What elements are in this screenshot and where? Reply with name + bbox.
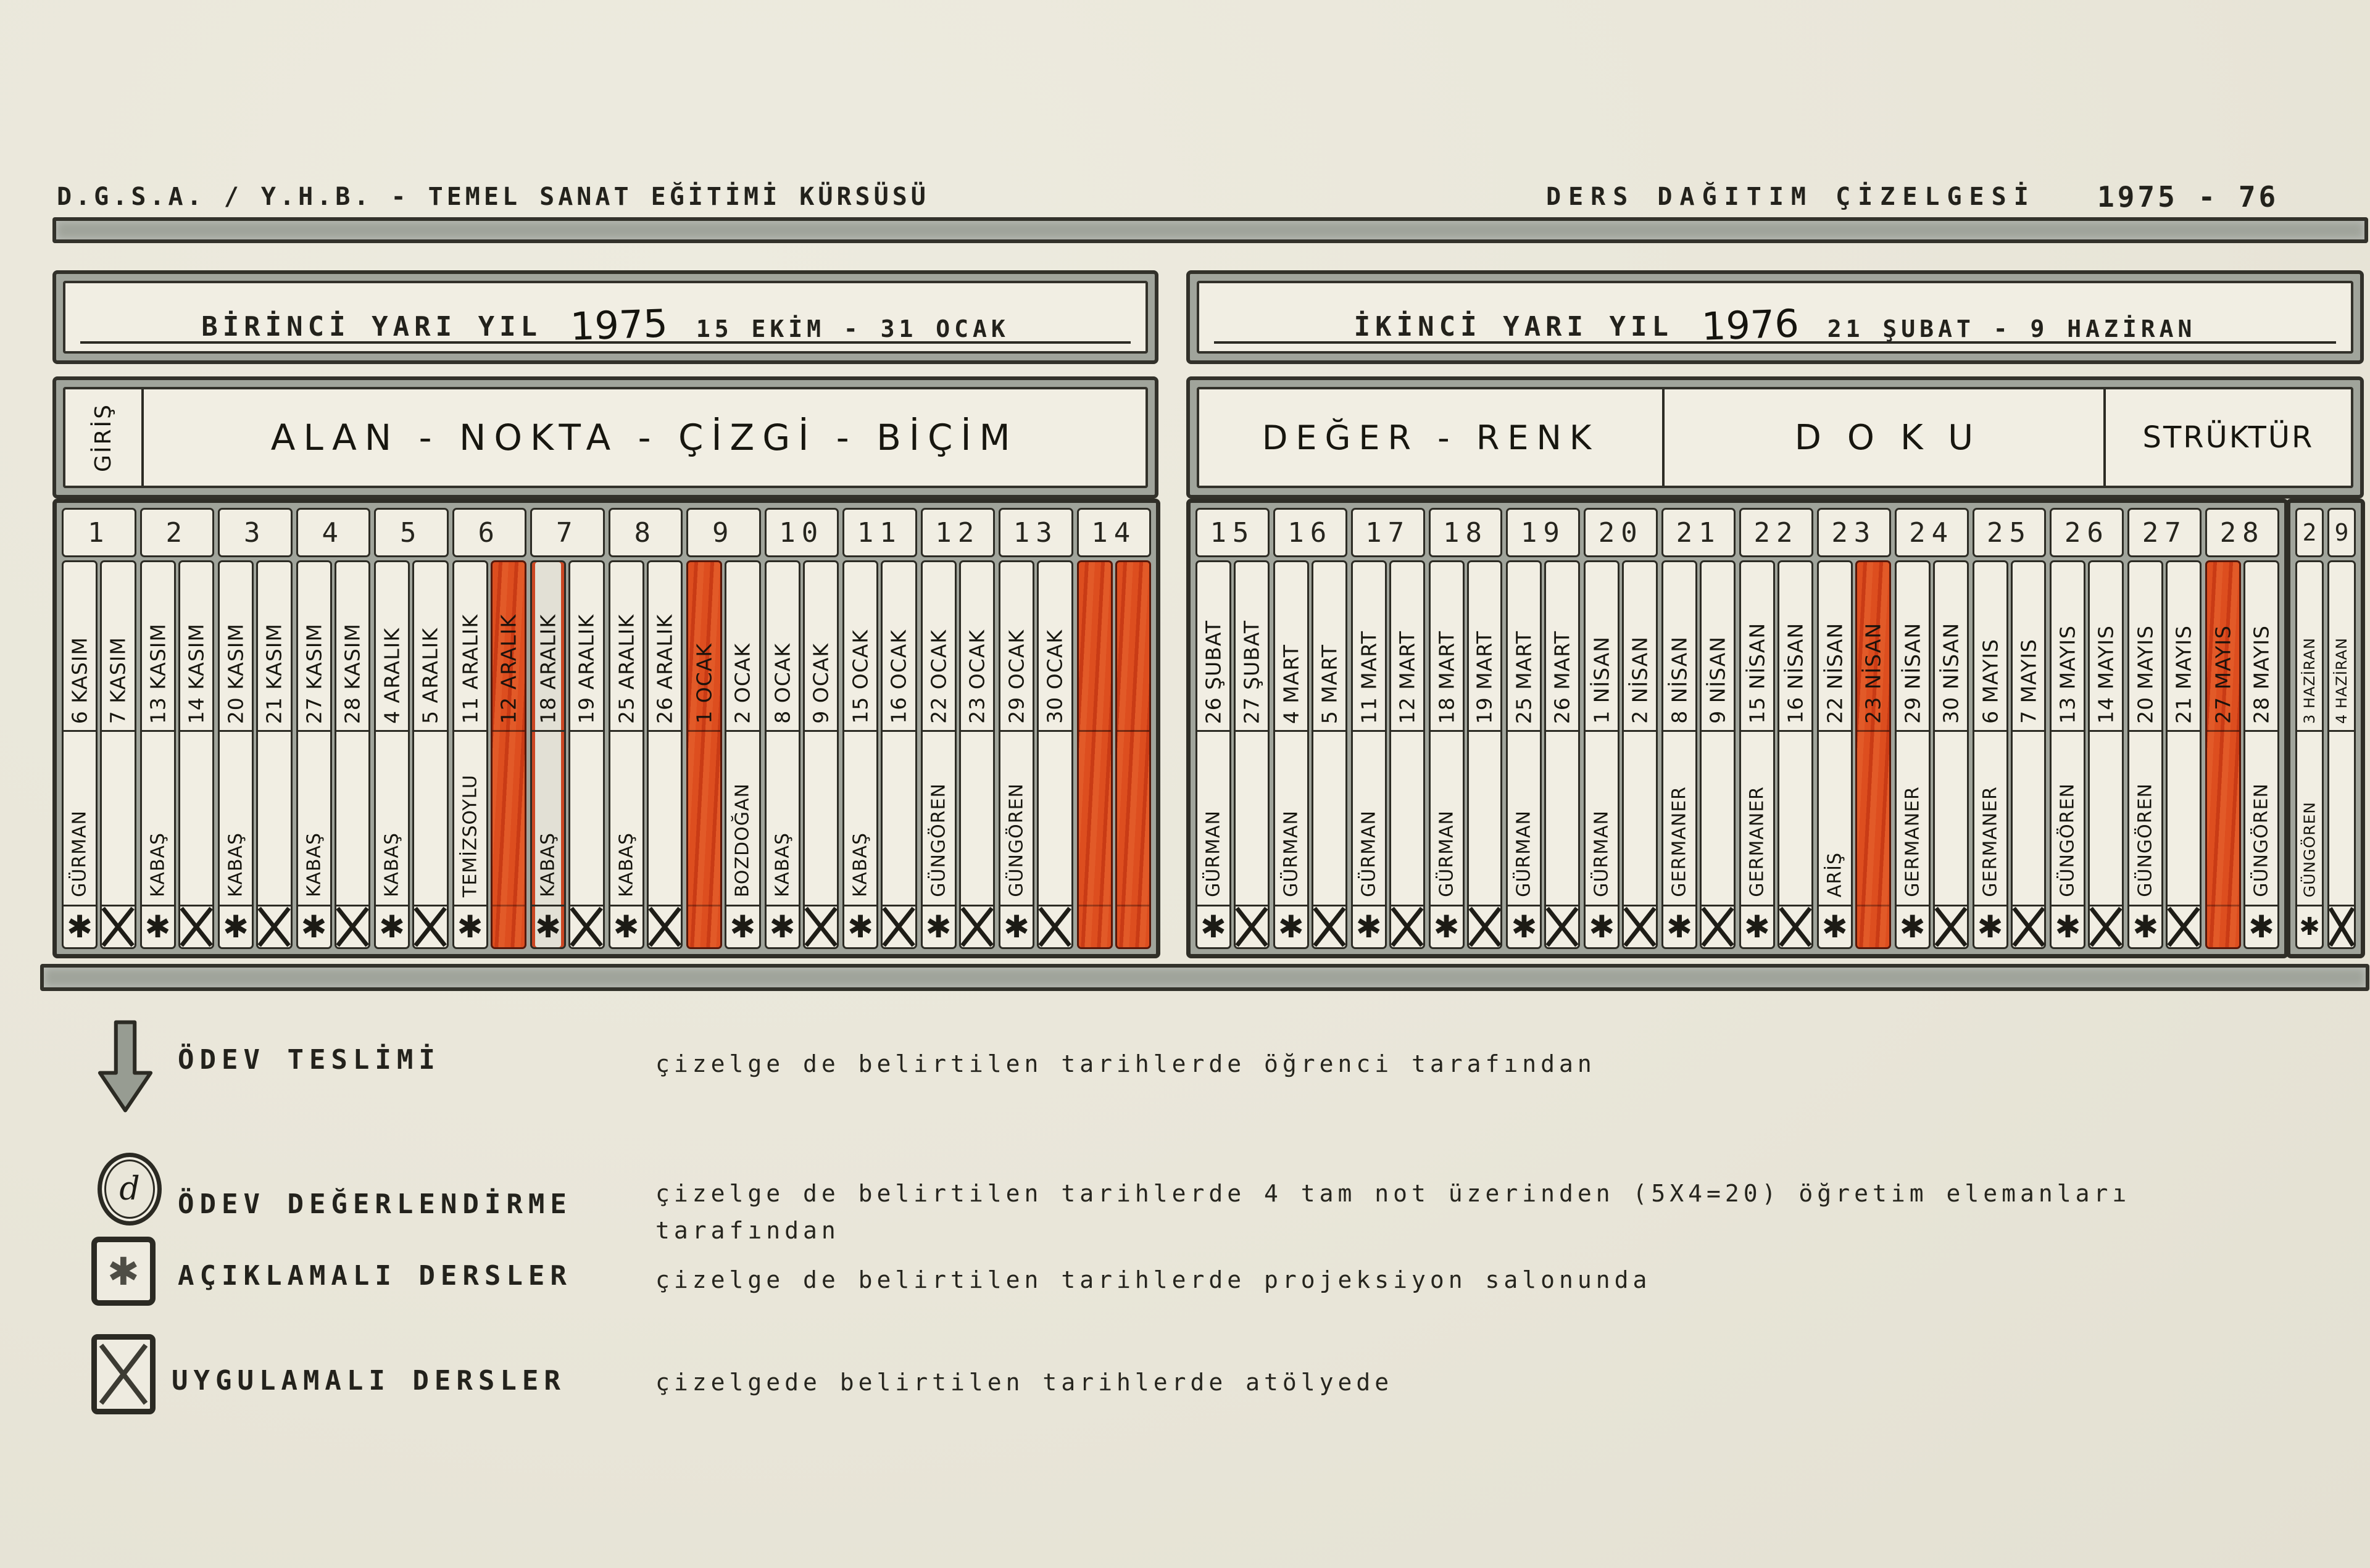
day-column: 26 MART	[1544, 560, 1580, 949]
week-days: 11 MARTGÜRMAN✱12 MART	[1351, 560, 1425, 949]
day-column: 18 MARTGÜRMAN✱	[1429, 560, 1465, 949]
week-column: 427 KASIMKABAŞ✱28 KASIM	[296, 508, 371, 949]
symbol-cell	[2090, 905, 2122, 947]
week-days: 27 MAYIS28 MAYISGÜNGÖREN✱	[2205, 560, 2279, 949]
date-cell: 30 OCAK	[1039, 562, 1071, 732]
instructor-cell: KABAŞ	[844, 732, 876, 905]
instructor-cell: KABAŞ	[767, 732, 799, 905]
date-label: 13 KASIM	[146, 623, 170, 724]
day-column: 13 KASIMKABAŞ✱	[140, 560, 176, 949]
legend-odev-teslimi-label: ÖDEV TESLİMİ	[178, 1044, 441, 1076]
date-cell: 22 NİSAN	[1819, 562, 1851, 732]
date-cell: 4 ARALIK	[376, 562, 408, 732]
instructor-name: GÜNGÖREN	[2135, 783, 2156, 897]
lecture-star-icon: ✱	[2248, 911, 2274, 942]
date-label: 19 ARALIK	[575, 614, 599, 724]
instructor-cell: GÜNGÖREN	[2052, 732, 2084, 905]
instructor-cell	[649, 732, 681, 905]
instructor-name: GÜRMAN	[1591, 810, 1613, 897]
date-cell: 9 NİSAN	[1702, 562, 1734, 732]
day-column: 19 MART	[1467, 560, 1503, 949]
practice-x-icon	[1391, 906, 1423, 947]
week-days: 13 MAYISGÜNGÖREN✱14 MAYIS	[2050, 560, 2124, 949]
semester-2-year: 1976	[1701, 306, 1800, 344]
date-cell: 29 OCAK	[1000, 562, 1033, 732]
date-cell: 25 ARALIK	[610, 562, 642, 732]
practice-x-icon	[180, 906, 212, 947]
practice-x-icon	[1702, 906, 1734, 947]
date-label: 30 OCAK	[1043, 629, 1067, 724]
symbol-cell: ✱	[2129, 905, 2161, 947]
day-column: 20 MAYISGÜNGÖREN✱	[2127, 560, 2163, 949]
day-column: 20 KASIMKABAŞ✱	[218, 560, 254, 949]
week-number: 11	[842, 508, 917, 557]
instructor-name: ARİŞ	[1824, 852, 1845, 897]
lecture-star-icon: ✱	[2055, 911, 2081, 942]
week-number: 12	[921, 508, 996, 557]
instructor-cell: GÜRMAN	[1275, 732, 1307, 905]
day-column: 27 MAYIS	[2205, 560, 2241, 949]
symbol-cell	[1039, 905, 1071, 947]
instructor-cell	[2013, 732, 2045, 905]
instructor-name: GERMANER	[1746, 786, 1768, 897]
week-days: 18 MARTGÜRMAN✱19 MART	[1429, 560, 1503, 949]
day-column: 13 MAYISGÜNGÖREN✱	[2050, 560, 2085, 949]
symbol-cell	[1857, 905, 1889, 947]
symbol-cell: ✱	[923, 905, 955, 947]
symbol-cell	[570, 905, 602, 947]
date-label: 3 HAZİRAN	[2301, 637, 2318, 724]
symbol-cell: ✱	[1508, 905, 1540, 947]
instructor-cell	[1857, 732, 1889, 905]
date-label: 26 ARALIK	[652, 614, 676, 724]
lecture-star-icon: ✱	[2299, 915, 2320, 939]
practice-x-icon	[2329, 906, 2354, 947]
date-label: 22 OCAK	[926, 629, 950, 724]
date-label: 2 NİSAN	[1628, 636, 1652, 724]
week-column: 825 ARALIKKABAŞ✱26 ARALIK	[609, 508, 683, 949]
symbol-cell: ✱	[1897, 905, 1929, 947]
instructor-name: KABAŞ	[303, 832, 325, 897]
day-column: 21 KASIM	[256, 560, 292, 949]
practice-x-icon	[570, 906, 602, 947]
instructor-cell	[1469, 732, 1501, 905]
instructor-name: GÜRMAN	[1358, 810, 1379, 897]
instructor-cell: KABAŞ	[532, 732, 564, 905]
date-label: 4 ARALIK	[380, 628, 404, 724]
date-label: 15 NİSAN	[1745, 623, 1769, 724]
week-days: 18 ARALIKKABAŞ✱19 ARALIK	[530, 560, 605, 949]
legend-odev-teslimi-desc: çizelge de belirtilen tarihlerde öğrenci…	[655, 1050, 1596, 1077]
day-column: 26 ARALIK	[647, 560, 683, 949]
instructor-cell	[1935, 732, 1967, 905]
separator-bar-top	[52, 217, 2368, 243]
date-label: 4 MART	[1279, 644, 1303, 724]
symbol-cell: ✱	[610, 905, 642, 947]
day-column: 19 ARALIK	[568, 560, 604, 949]
practice-x-icon	[258, 906, 290, 947]
date-cell: 6 KASIM	[64, 562, 96, 732]
week-column: 94 HAZİRAN	[2327, 508, 2356, 949]
symbol-cell: ✱	[844, 905, 876, 947]
date-cell: 14 MAYIS	[2090, 562, 2122, 732]
day-column: 27 KASIMKABAŞ✱	[296, 560, 332, 949]
schedule-table-semester-2: 1526 ŞUBATGÜRMAN✱27 ŞUBAT164 MARTGÜRMAN✱…	[1186, 499, 2289, 958]
date-label: 22 NİSAN	[1823, 623, 1847, 724]
semester-2-title: İKİNCİ YARI YIL	[1354, 311, 1673, 342]
practice-x-icon	[2090, 906, 2122, 947]
instructor-cell: GERMANER	[1974, 732, 2006, 905]
day-column: 5 MART	[1312, 560, 1347, 949]
instructor-name: BOZDOĞAN	[732, 783, 754, 897]
separator-bar-bottom	[40, 964, 2369, 991]
instructor-name: GÜNGÖREN	[2057, 783, 2079, 897]
date-label: 28 MAYIS	[2250, 625, 2274, 724]
lecture-star-icon: ✱	[1589, 911, 1615, 942]
week-number: 8	[609, 508, 683, 557]
day-column: 18 ARALIKKABAŞ✱	[530, 560, 566, 949]
week-number: 26	[2050, 508, 2124, 557]
subject-giris: GİRİŞ	[65, 389, 141, 486]
week-column: 718 ARALIKKABAŞ✱19 ARALIK	[530, 508, 605, 949]
day-column: 29 OCAKGÜNGÖREN✱	[999, 560, 1034, 949]
date-label: 14 KASIM	[184, 623, 208, 724]
instructor-cell: KABAŞ	[376, 732, 408, 905]
week-number: 4	[296, 508, 371, 557]
week-number: 9	[686, 508, 761, 557]
day-column: 7 MAYIS	[2011, 560, 2047, 949]
date-label: 23 OCAK	[965, 629, 989, 724]
practice-x-icon	[2013, 906, 2045, 947]
date-cell: 18 ARALIK	[532, 562, 564, 732]
date-label: 26 MART	[1550, 631, 1574, 724]
subject-giris-label: GİRİŞ	[91, 403, 116, 472]
week-days: 25 ARALIKKABAŞ✱26 ARALIK	[609, 560, 683, 949]
instructor-cell: GÜRMAN	[64, 732, 96, 905]
date-cell: 6 MAYIS	[1974, 562, 2006, 732]
lecture-star-icon: ✱	[535, 911, 561, 942]
instructor-cell	[180, 732, 212, 905]
date-label: 2 OCAK	[731, 643, 755, 724]
day-column: 23 NİSAN	[1855, 560, 1891, 949]
day-column: 30 NİSAN	[1933, 560, 1969, 949]
date-cell: 1 OCAK	[688, 562, 720, 732]
week-days: 4 HAZİRAN	[2327, 560, 2356, 949]
week-days: 6 KASIMGÜRMAN✱7 KASIM	[62, 560, 136, 949]
subject-alan-nokta-cizgi-bicim: ALAN - NOKTA - ÇİZGİ - BİÇİM	[141, 389, 1146, 486]
lecture-star-icon: ✱	[1977, 911, 2003, 942]
lecture-star-icon: ✱	[1744, 911, 1770, 942]
instructor-cell: GÜRMAN	[1353, 732, 1385, 905]
instructor-name: GÜNGÖREN	[928, 783, 949, 897]
instructor-cell	[1079, 732, 1111, 905]
symbol-cell	[1935, 905, 1967, 947]
day-column	[1115, 560, 1151, 949]
week-column: 1222 OCAKGÜNGÖREN✱23 OCAK	[921, 508, 996, 949]
date-label: 30 NİSAN	[1939, 623, 1963, 724]
semester-1-title: BİRİNCİ YARI YIL	[201, 311, 542, 342]
semester-1-range: 15 EKİM - 31 OCAK	[696, 315, 1010, 342]
day-column: 11 MARTGÜRMAN✱	[1351, 560, 1387, 949]
day-column: 2 OCAKBOZDOĞAN✱	[725, 560, 760, 949]
date-label: 7 MAYIS	[2016, 639, 2040, 724]
page: { "header": { "org": "D.G.S.A. / Y.H.B. …	[0, 0, 2370, 1568]
week-number: 24	[1895, 508, 1969, 557]
week-column: 2215 NİSANGERMANER✱16 NİSAN	[1739, 508, 1813, 949]
evaluation-symbol: d	[119, 1171, 139, 1208]
date-cell: 16 NİSAN	[1779, 562, 1811, 732]
instructor-cell	[1779, 732, 1811, 905]
week-column: 2429 NİSANGERMANER✱30 NİSAN	[1895, 508, 1969, 949]
date-cell: 11 ARALIK	[454, 562, 486, 732]
date-cell: 19 MART	[1469, 562, 1501, 732]
day-column: 6 MAYISGERMANER✱	[1973, 560, 2008, 949]
instructor-cell	[102, 732, 134, 905]
lecture-star-icon: ✱	[1004, 911, 1029, 942]
week-number: 9	[2327, 508, 2356, 557]
day-column: 29 NİSANGERMANER✱	[1895, 560, 1931, 949]
date-label: 8 NİSAN	[1668, 636, 1692, 724]
date-cell: 7 MAYIS	[2013, 562, 2045, 732]
subject-deger-renk: DEĞER - RENK	[1199, 389, 1662, 486]
lecture-star-icon: ✱	[1666, 911, 1692, 942]
date-label: 5 MART	[1317, 644, 1341, 724]
week-number: 21	[1661, 508, 1736, 557]
week-days: 1 OCAK2 OCAKBOZDOĞAN✱	[686, 560, 761, 949]
week-days: 8 OCAKKABAŞ✱9 OCAK	[765, 560, 839, 949]
instructor-cell: GÜRMAN	[1197, 732, 1229, 905]
lecture-star-icon: ✱	[1278, 911, 1304, 942]
practice-x-icon	[1779, 906, 1811, 947]
date-cell: 12 ARALIK	[493, 562, 525, 732]
day-column: 16 OCAK	[881, 560, 917, 949]
date-label: 20 KASIM	[224, 623, 248, 724]
week-column: 2322 NİSANARİŞ✱23 NİSAN	[1817, 508, 1891, 949]
week-days: 4 MARTGÜRMAN✱5 MART	[1273, 560, 1347, 949]
practice-x-icon	[1039, 906, 1071, 947]
week-number: 18	[1429, 508, 1503, 557]
date-cell: 26 ŞUBAT	[1197, 562, 1229, 732]
date-cell: 25 MART	[1508, 562, 1540, 732]
symbol-cell: ✱	[726, 905, 759, 947]
date-cell: 20 MAYIS	[2129, 562, 2161, 732]
day-column: 28 MAYISGÜNGÖREN✱	[2243, 560, 2279, 949]
symbol-cell	[805, 905, 837, 947]
symbol-cell	[1079, 905, 1111, 947]
day-column: 23 OCAK	[959, 560, 995, 949]
date-cell: 28 KASIM	[336, 562, 368, 732]
week-column: 1115 OCAKKABAŞ✱16 OCAK	[842, 508, 917, 949]
instructor-name: GÜRMAN	[69, 810, 91, 897]
symbol-cell: ✱	[532, 905, 564, 947]
week-number: 1	[62, 508, 136, 557]
day-column: 4 HAZİRAN	[2327, 560, 2356, 949]
day-column: 21 MAYIS	[2166, 560, 2202, 949]
date-label: 13 MAYIS	[2056, 625, 2080, 724]
symbol-cell	[102, 905, 134, 947]
date-cell: 27 KASIM	[298, 562, 330, 732]
date-label: 16 OCAK	[887, 629, 911, 724]
symbol-cell: ✱	[1974, 905, 2006, 947]
practice-x-icon	[1313, 906, 1345, 947]
subject-doku: DOKU	[1662, 389, 2103, 486]
date-label: 26 ŞUBAT	[1201, 620, 1225, 724]
symbol-cell	[688, 905, 720, 947]
date-cell: 14 KASIM	[180, 562, 212, 732]
week-number: 15	[1195, 508, 1270, 557]
date-cell: 4 HAZİRAN	[2329, 562, 2354, 732]
lecture-star-icon: ✱	[457, 911, 483, 942]
week-days: 6 MAYISGERMANER✱7 MAYIS	[1973, 560, 2047, 949]
date-label: 28 KASIM	[340, 623, 364, 724]
instructor-cell: GÜRMAN	[1431, 732, 1463, 905]
date-label: 8 OCAK	[770, 643, 794, 724]
week-number: 13	[999, 508, 1073, 557]
practice-x-icon	[883, 906, 915, 947]
date-label: 12 MART	[1395, 631, 1419, 724]
instructor-name: TEMİZSOYLU	[459, 774, 481, 897]
symbol-cell: ✱	[220, 905, 252, 947]
date-label: 29 NİSAN	[1900, 623, 1924, 724]
week-column: 54 ARALIKKABAŞ✱5 ARALIK	[374, 508, 449, 949]
date-cell: 23 OCAK	[961, 562, 993, 732]
instructor-cell: GÜRMAN	[1586, 732, 1618, 905]
instructor-cell	[1624, 732, 1656, 905]
instructor-cell	[1039, 732, 1071, 905]
legend-odev-degerlendirme-desc2: tarafından	[655, 1217, 840, 1244]
date-cell: 8 OCAK	[767, 562, 799, 732]
schedule-table-week-29: 23 HAZİRANGÜNGÖREN✱94 HAZİRAN	[2286, 499, 2365, 958]
instructor-cell: KABAŞ	[142, 732, 174, 905]
week-number: 17	[1351, 508, 1425, 557]
week-number: 19	[1506, 508, 1580, 557]
symbol-cell	[1624, 905, 1656, 947]
instructor-cell	[1546, 732, 1578, 905]
day-column: 14 KASIM	[178, 560, 214, 949]
week-days: 27 KASIMKABAŞ✱28 KASIM	[296, 560, 371, 949]
date-cell: 13 MAYIS	[2052, 562, 2084, 732]
day-column: 4 MARTGÜRMAN✱	[1273, 560, 1309, 949]
week-column: 218 NİSANGERMANER✱9 NİSAN	[1661, 508, 1736, 949]
week-days: 15 OCAKKABAŞ✱16 OCAK	[842, 560, 917, 949]
date-cell: 5 ARALIK	[414, 562, 446, 732]
instructor-name: KABAŞ	[381, 832, 403, 897]
instructor-cell: GERMANER	[1897, 732, 1929, 905]
lecture-star-icon: ✱	[770, 911, 796, 942]
week-days: 15 NİSANGERMANER✱16 NİSAN	[1739, 560, 1813, 949]
lecture-star-icon: ✱	[67, 911, 93, 942]
school-years: 1975 - 76	[2097, 180, 2279, 214]
week-days: 11 ARALIKTEMİZSOYLU✱12 ARALIK	[452, 560, 527, 949]
instructor-name: GERMANER	[1902, 786, 1923, 897]
week-column: 611 ARALIKTEMİZSOYLU✱12 ARALIK	[452, 508, 527, 949]
day-column: 15 NİSANGERMANER✱	[1739, 560, 1775, 949]
week-number: 23	[1817, 508, 1891, 557]
date-label: 27 MAYIS	[2211, 625, 2235, 724]
symbol-cell	[2168, 905, 2200, 947]
week-column: 1818 MARTGÜRMAN✱19 MART	[1429, 508, 1503, 949]
date-label: 11 ARALIK	[458, 614, 482, 724]
lecture-star-icon: ✱	[1822, 911, 1848, 942]
symbol-cell: ✱	[1197, 905, 1229, 947]
lecture-star-icon: ✱	[1356, 911, 1382, 942]
date-label: 25 MART	[1512, 631, 1536, 724]
day-column: 1 OCAK	[686, 560, 722, 949]
week-number: 5	[374, 508, 449, 557]
lecture-star-icon: ✱	[1900, 911, 1926, 942]
week-number: 20	[1584, 508, 1658, 557]
instructor-name: GÜRMAN	[1202, 810, 1224, 897]
lecture-star-box-icon: ✱	[91, 1237, 156, 1306]
symbol-cell: ✱	[1431, 905, 1463, 947]
symbol-cell	[258, 905, 290, 947]
day-column: 3 HAZİRANGÜNGÖREN✱	[2295, 560, 2324, 949]
symbol-cell: ✱	[142, 905, 174, 947]
symbol-cell: ✱	[2052, 905, 2084, 947]
instructor-name: GERMANER	[1669, 786, 1690, 897]
date-label: 1 OCAK	[692, 643, 717, 724]
week-column: 1329 OCAKGÜNGÖREN✱30 OCAK	[999, 508, 1073, 949]
symbol-cell	[336, 905, 368, 947]
practice-x-icon	[649, 906, 681, 947]
date-label: 12 ARALIK	[496, 614, 520, 724]
week-days: 20 MAYISGÜNGÖREN✱21 MAYIS	[2127, 560, 2202, 949]
date-cell: 4 MART	[1275, 562, 1307, 732]
instructor-cell: KABAŞ	[610, 732, 642, 905]
date-cell: 29 NİSAN	[1897, 562, 1929, 732]
date-label: 18 ARALIK	[536, 614, 560, 724]
date-cell: 28 MAYIS	[2245, 562, 2277, 732]
instructor-name: GÜNGÖREN	[1006, 783, 1028, 897]
lecture-star-icon: ✱	[379, 911, 405, 942]
instructor-name: KABAŞ	[771, 832, 793, 897]
week-number: 27	[2127, 508, 2202, 557]
week-number: 7	[530, 508, 605, 557]
week-days: 1 NİSANGÜRMAN✱2 NİSAN	[1584, 560, 1658, 949]
date-label: 6 KASIM	[68, 637, 92, 724]
date-label: 6 MAYIS	[1978, 639, 2002, 724]
symbol-cell: ✱	[1000, 905, 1033, 947]
lecture-star-icon: ✱	[730, 911, 755, 942]
day-column: 12 ARALIK	[491, 560, 526, 949]
day-column: 1 NİSANGÜRMAN✱	[1584, 560, 1619, 949]
symbol-cell: ✱	[767, 905, 799, 947]
lecture-star-icon: ✱	[1434, 911, 1460, 942]
instructor-name: KABAŞ	[147, 832, 168, 897]
day-column: 2 NİSAN	[1622, 560, 1658, 949]
instructor-cell: GERMANER	[1741, 732, 1773, 905]
org-title: D.G.S.A. / Y.H.B. - TEMEL SANAT EĞİTİMİ …	[57, 183, 929, 211]
day-column	[1077, 560, 1113, 949]
week-days	[1077, 560, 1152, 949]
day-column: 11 ARALIKTEMİZSOYLU✱	[452, 560, 488, 949]
date-label: 14 MAYIS	[2094, 625, 2118, 724]
day-column: 4 ARALIKKABAŞ✱	[374, 560, 410, 949]
week-days: 13 KASIMKABAŞ✱14 KASIM	[140, 560, 215, 949]
instructor-cell: GÜNGÖREN	[2245, 732, 2277, 905]
symbol-cell	[1236, 905, 1268, 947]
instructor-cell: ARİŞ	[1819, 732, 1851, 905]
practice-x-icon	[102, 906, 134, 947]
subject-struktur: STRÜKTÜR	[2103, 389, 2351, 486]
week-days: 4 ARALIKKABAŞ✱5 ARALIK	[374, 560, 449, 949]
week-column: 16 KASIMGÜRMAN✱7 KASIM	[62, 508, 136, 949]
date-cell: 22 OCAK	[923, 562, 955, 732]
lecture-star-icon: ✱	[223, 911, 249, 942]
lecture-star-icon: ✱	[613, 911, 639, 942]
date-label: 29 OCAK	[1005, 629, 1029, 724]
instructor-name: GÜRMAN	[1513, 810, 1535, 897]
